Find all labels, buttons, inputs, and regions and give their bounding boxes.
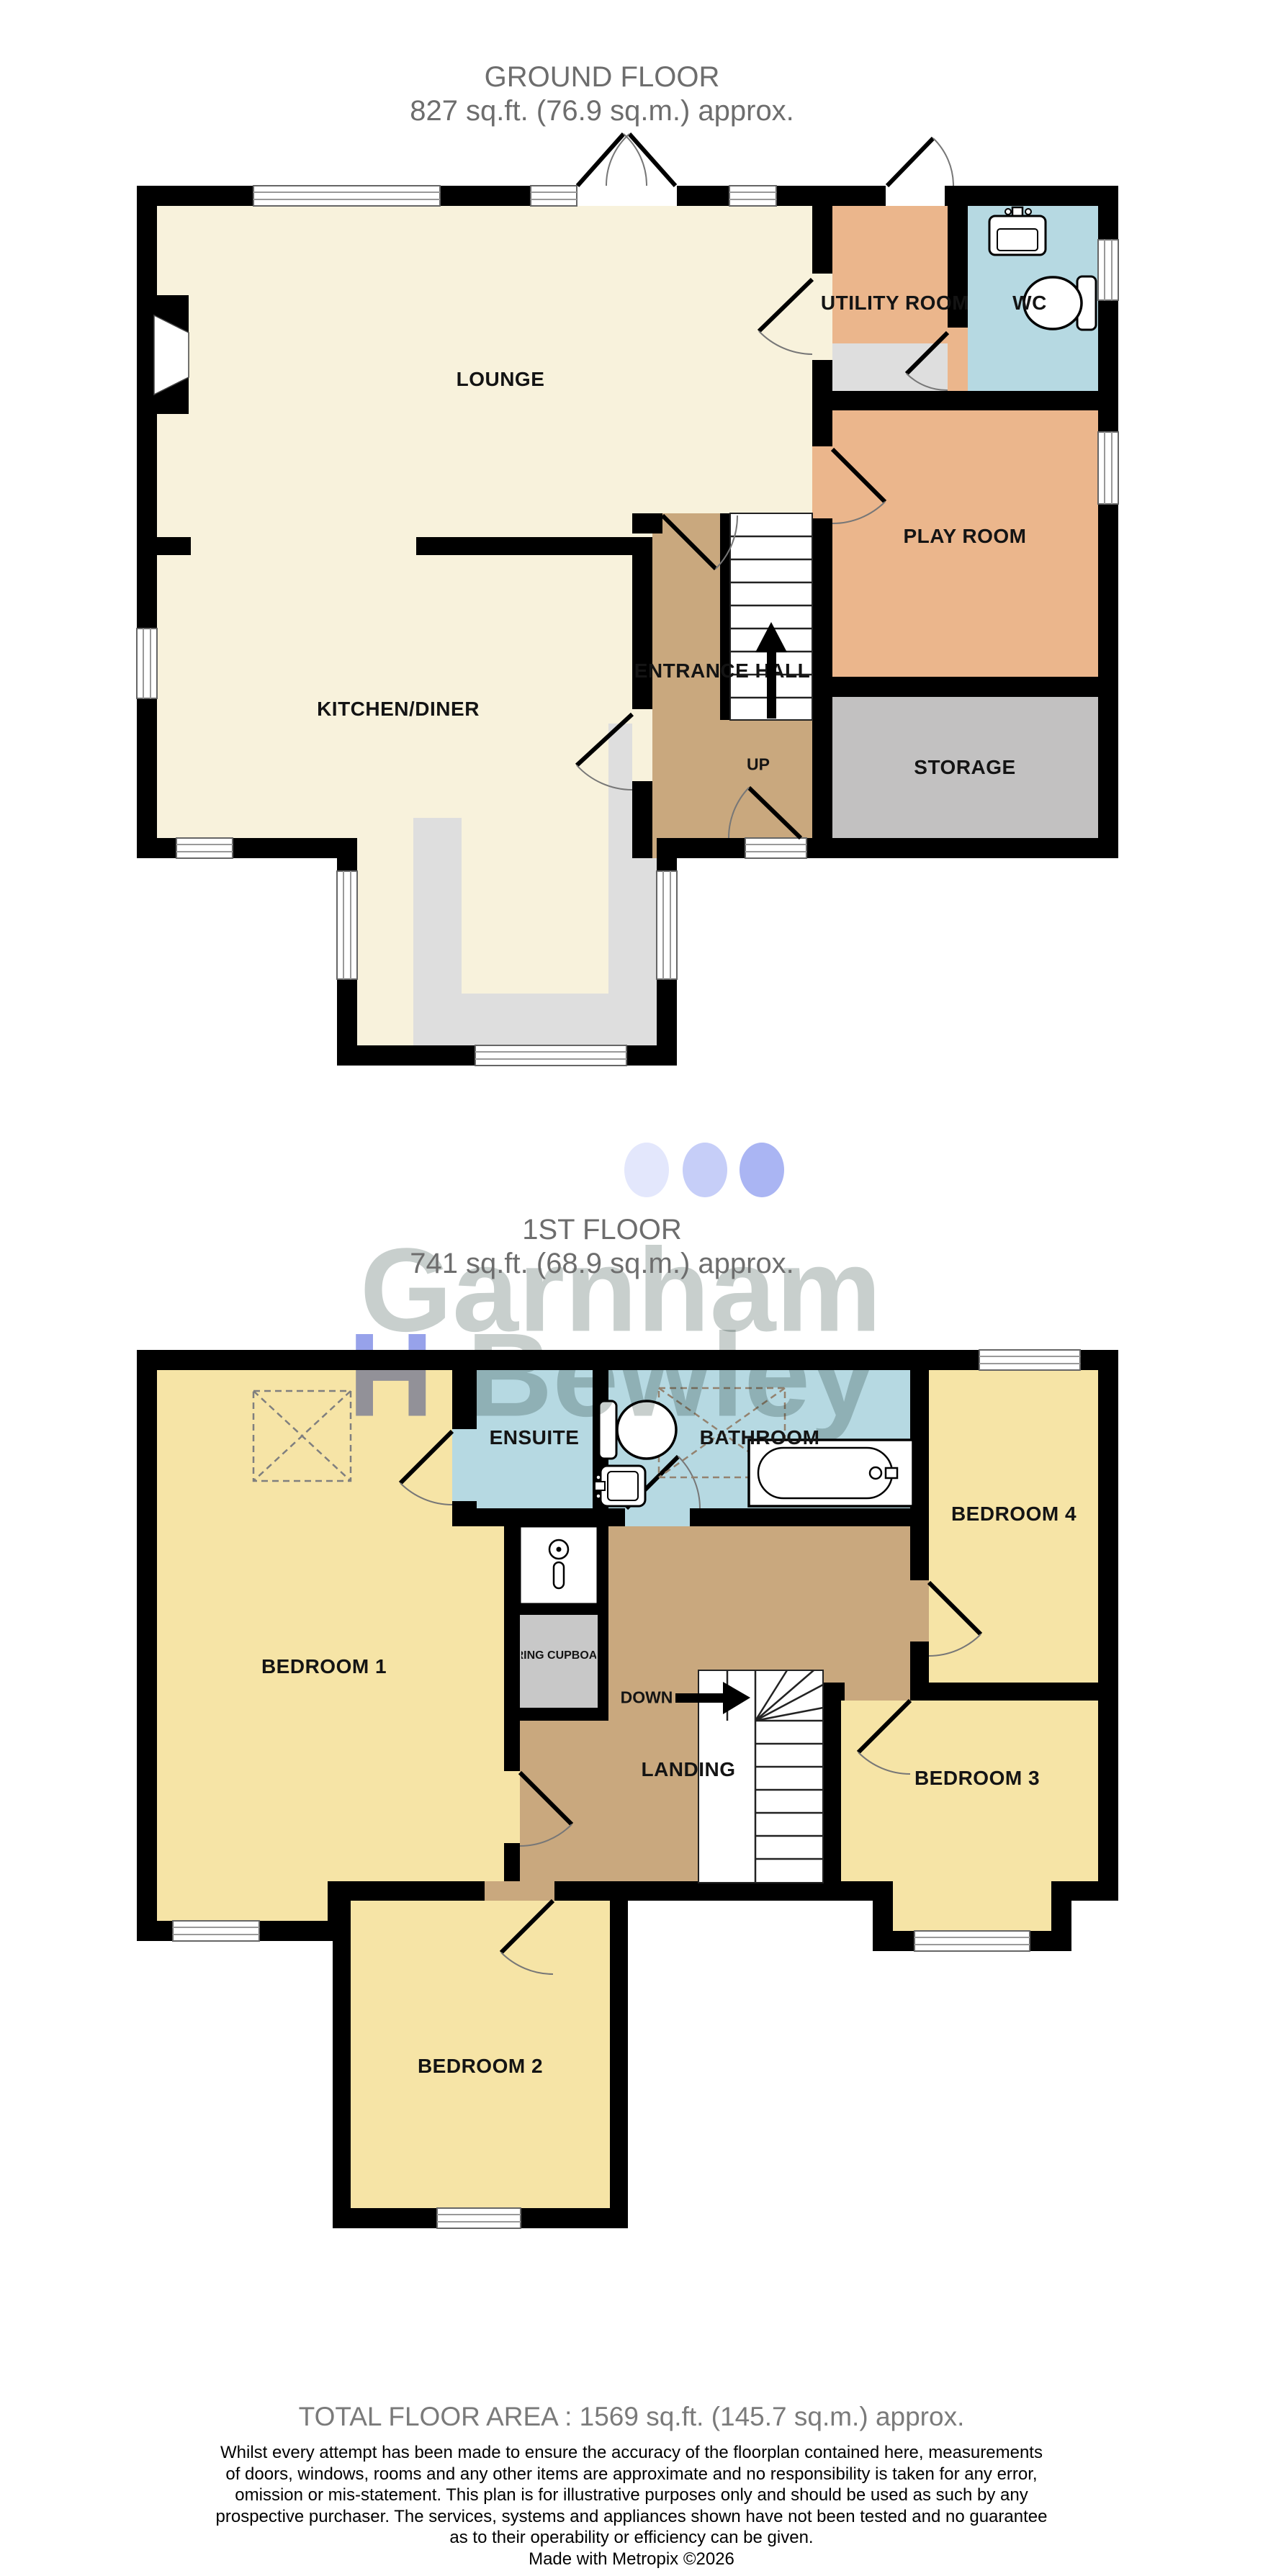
- ensuite-shower-icon: [520, 1526, 598, 1604]
- ensuite-label: ENSUITE: [490, 1426, 580, 1449]
- french-door-left: [577, 134, 624, 186]
- entrance-hall-label: ENTRANCE HALL: [634, 659, 811, 683]
- front-door-threshold: [745, 838, 806, 858]
- landing-label: LANDING: [641, 1758, 735, 1781]
- utility-back-door-opening: [886, 186, 945, 206]
- staircase-up: [730, 513, 812, 720]
- bedroom1-window: [173, 1921, 259, 1941]
- logo-dot-1: [624, 1143, 669, 1197]
- storage-label: STORAGE: [914, 756, 1015, 779]
- disclaimer-line: Whilst every attempt has been made to en…: [185, 2442, 1078, 2464]
- bedroom1-floor: [157, 1370, 452, 1921]
- floorplan-page: GROUND FLOOR 827 sq.ft. (76.9 sq.m.) app…: [0, 0, 1263, 2576]
- watermark-line2: H Bewley: [348, 1307, 876, 1444]
- first-floor-title-line: 1ST FLOOR: [410, 1213, 794, 1247]
- ground-floor-rooms: [157, 206, 1098, 1045]
- bedroom4-label: BEDROOM 4: [951, 1503, 1077, 1526]
- bathroom-label: BATHROOM: [700, 1426, 820, 1449]
- bedroom2-label: BEDROOM 2: [418, 2055, 543, 2078]
- logo-dot-2: [683, 1143, 727, 1197]
- bay-window-right: [657, 871, 677, 979]
- first-floor-area: 741 sq.ft. (68.9 sq.m.) approx.: [410, 1247, 794, 1281]
- logo-dot-3: [740, 1143, 784, 1197]
- french-door-right: [629, 134, 675, 186]
- kitchen-floor: [157, 537, 632, 838]
- bedroom3-floor: [841, 1701, 1098, 1881]
- down-label: DOWN: [621, 1688, 673, 1708]
- bedroom3-label: BEDROOM 3: [914, 1767, 1040, 1790]
- disclaimer: Whilst every attempt has been made to en…: [185, 2442, 1078, 2570]
- lounge-label: LOUNGE: [457, 368, 545, 391]
- bedroom4-window: [979, 1350, 1080, 1370]
- bedroom2-window: [437, 2208, 521, 2228]
- wc-window: [1098, 240, 1118, 300]
- utility-label: UTILITY ROOM: [821, 292, 969, 315]
- bathroom-sink-icon: [595, 1466, 645, 1506]
- watermark-initial: H: [348, 1309, 433, 1441]
- french-door-opening: [576, 186, 677, 206]
- ground-floor-title: GROUND FLOOR 827 sq.ft. (76.9 sq.m.) app…: [410, 60, 794, 128]
- disclaimer-line: omission or mis-statement. This plan is …: [185, 2485, 1078, 2506]
- kitchen-label: KITCHEN/DINER: [317, 698, 480, 721]
- utility-floor: [832, 206, 948, 343]
- up-label: UP: [747, 755, 770, 775]
- landing-floor: [608, 1526, 910, 1670]
- total-floor-area: TOTAL FLOOR AREA : 1569 sq.ft. (145.7 sq…: [299, 2402, 965, 2432]
- kitchen-window: [137, 629, 157, 698]
- bedroom4-floor: [929, 1370, 1098, 1683]
- ground-floor-title-line: GROUND FLOOR: [410, 60, 794, 94]
- bathtub-icon: [749, 1440, 913, 1506]
- first-floor-title: 1ST FLOOR 741 sq.ft. (68.9 sq.m.) approx…: [410, 1213, 794, 1281]
- bay-window-left: [337, 871, 357, 979]
- play-room-window: [1098, 432, 1118, 504]
- made-with-metropix: Made with Metropix ©2026: [185, 2549, 1078, 2570]
- play-room-label: PLAY ROOM: [904, 525, 1027, 548]
- disclaimer-line: as to their operability or efficiency ca…: [185, 2527, 1078, 2549]
- ground-floor-area: 827 sq.ft. (76.9 sq.m.) approx.: [410, 94, 794, 128]
- disclaimer-line: of doors, windows, rooms and any other i…: [185, 2464, 1078, 2485]
- bedroom3-window: [914, 1931, 1030, 1951]
- bay-window-bottom: [475, 1045, 626, 1066]
- wc-label: WC: [1012, 292, 1047, 315]
- kitchen-counter-left: [413, 818, 462, 994]
- lounge-window: [253, 186, 440, 206]
- watermark-rest: Bewley: [467, 1309, 876, 1441]
- airing-cupboard-label: AIRING CUPBOARD: [521, 1649, 596, 1662]
- utility-back-door: [887, 138, 933, 186]
- bedroom1-label: BEDROOM 1: [261, 1655, 387, 1678]
- disclaimer-line: prospective purchaser. The services, sys…: [185, 2506, 1078, 2528]
- kitchen-counter-bottom: [413, 994, 657, 1045]
